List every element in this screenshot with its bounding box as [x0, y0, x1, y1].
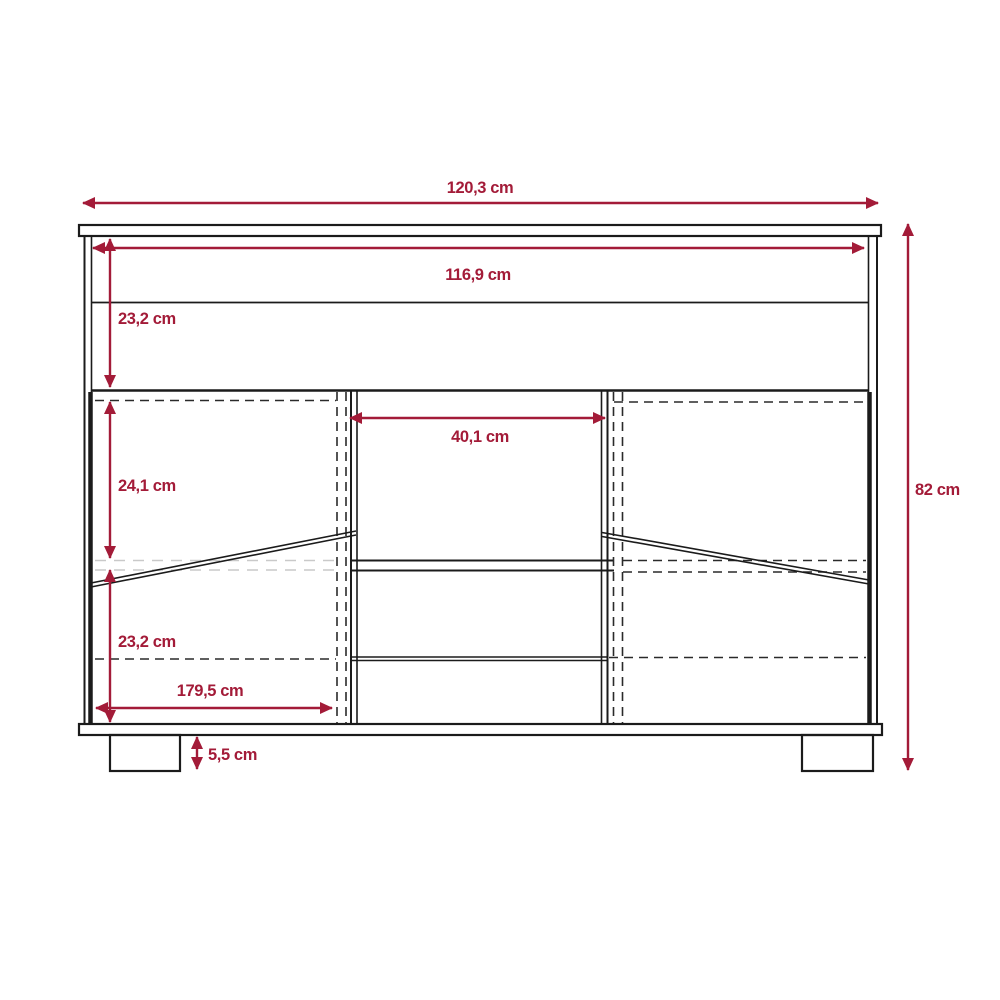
left-door-diagonal-lower	[91, 535, 356, 587]
dim-foot-height-label: 5,5 cm	[208, 746, 257, 764]
dimension-labels: 120,3 cm 116,9 cm 23,2 cm 40,1 cm 24,1 c…	[118, 179, 960, 764]
dim-door-span-label: 179,5 cm	[177, 682, 244, 700]
right-foot	[802, 735, 873, 771]
door-diagonals	[91, 531, 869, 587]
left-foot	[110, 735, 180, 771]
dimension-diagram: 120,3 cm 116,9 cm 23,2 cm 40,1 cm 24,1 c…	[0, 0, 1000, 1000]
dim-interior-width-label: 116,9 cm	[445, 266, 511, 284]
top-panel	[79, 225, 881, 236]
right-door-diagonal-upper	[602, 533, 869, 581]
furniture-drawing-canvas: 120,3 cm 116,9 cm 23,2 cm 40,1 cm 24,1 c…	[0, 0, 1000, 1000]
dim-center-opening-label: 40,1 cm	[451, 428, 509, 446]
dim-overall-width-label: 120,3 cm	[447, 179, 514, 197]
dim-top-section-label: 23,2 cm	[118, 310, 176, 328]
dim-door-lower-label: 23,2 cm	[118, 633, 176, 651]
dim-door-upper-label: 24,1 cm	[118, 477, 176, 495]
left-door-diagonal-upper	[91, 531, 356, 583]
dim-overall-height-label: 82 cm	[915, 481, 960, 499]
bottom-panel	[79, 724, 882, 735]
